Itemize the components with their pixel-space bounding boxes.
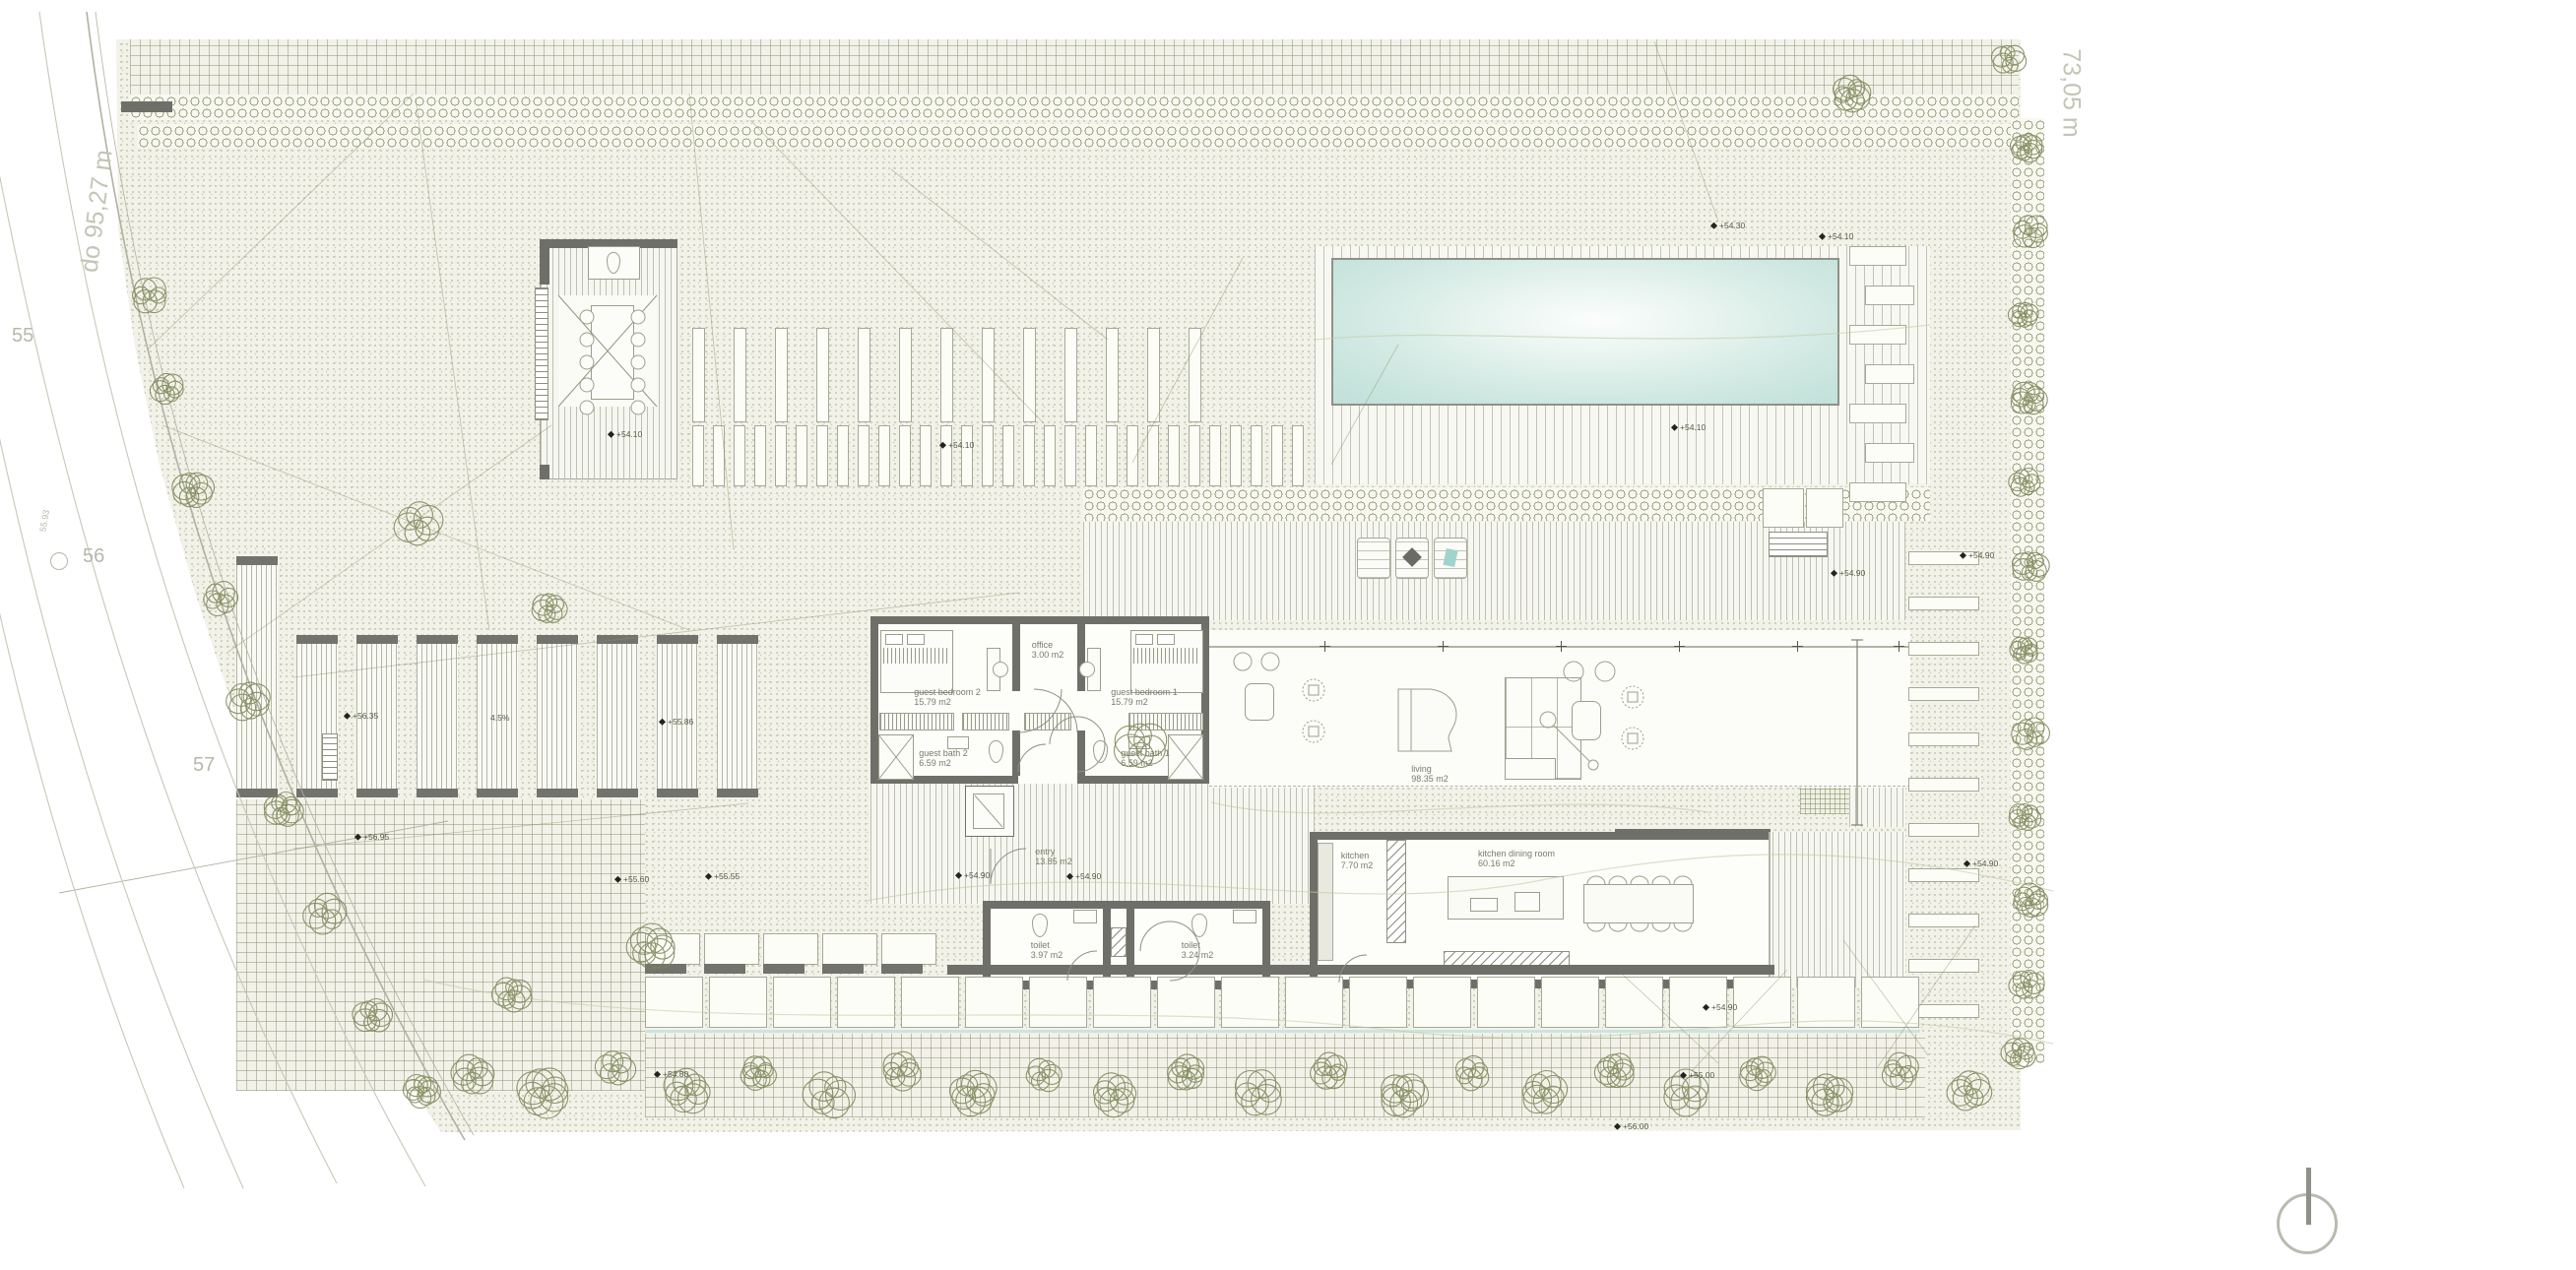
north-arrow-icon [2306,1168,2311,1225]
level-marker: +54.10 [1672,423,1706,432]
level-marker: +54.10 [1820,232,1853,241]
room-name: living [1411,764,1432,774]
level-dot-icon [608,431,614,438]
level-marker: +55.86 [660,718,693,727]
room-area: 3.24 m2 [1182,950,1214,960]
level-dot-icon [654,1071,661,1078]
parcel-number-56: 56 [83,545,104,568]
room-area: 15.79 m2 [914,697,981,707]
room-name: toilet [1031,940,1050,950]
room-area: 13.85 m2 [1035,857,1072,866]
level-marker: +54.10 [940,441,974,450]
level-marker: +54.80 [655,1070,688,1079]
boundary-dimension-right: 73,05 m [2057,48,2086,137]
room-label-kitchen: kitchen 7.70 m2 [1341,851,1374,870]
level-marker: +54.10 [609,430,642,439]
level-marker: +54.90 [1832,569,1865,578]
level-dot-icon [1671,424,1678,431]
room-label-guest-bedroom-2: guest bedroom 2 15.79 m2 [914,687,981,707]
room-area: 7.70 m2 [1341,860,1374,870]
level-dot-icon [1831,570,1837,577]
level-marker: +56.95 [355,833,389,842]
room-area: 15.79 m2 [1111,697,1178,707]
room-area: 98.35 m2 [1411,774,1449,784]
level-dot-icon [1960,552,1966,559]
room-label-living: living 98.35 m2 [1411,764,1449,784]
room-name: guest bath 1 [1121,748,1170,758]
room-label-office: office 3.00 m2 [1032,640,1064,660]
level-marker: +55.60 [615,875,649,884]
room-area: 3.97 m2 [1031,950,1063,960]
level-marker: +55.55 [706,872,740,881]
room-name: kitchen dining room [1478,849,1555,858]
room-area: 3.00 m2 [1032,650,1064,660]
benchmark-point [50,552,68,570]
level-marker: +54.90 [1961,551,1994,560]
level-marker: +56.00 [1615,1122,1648,1131]
level-dot-icon [1680,1072,1687,1079]
room-name: entry [1035,847,1055,857]
room-name: toilet [1182,940,1200,950]
room-label-guest-bath-2: guest bath 2 6.59 m2 [919,748,968,768]
level-dot-icon [1819,233,1826,240]
level-marker: +55.00 [1681,1071,1714,1080]
level-marker: +54.90 [1964,859,1998,868]
room-label-entry: entry 13.85 m2 [1035,847,1072,866]
room-label-toilet-2: toilet 3.24 m2 [1182,940,1214,960]
level-marker: +54.90 [1704,1003,1737,1012]
room-area: 6.59 m2 [919,758,968,768]
room-label-guest-bath-1: guest bath 1 6.59 m2 [1121,748,1170,768]
room-name: kitchen [1341,851,1370,860]
level-dot-icon [354,834,361,841]
level-dot-icon [1710,222,1717,229]
level-dot-icon [344,713,351,720]
parcel-number-55: 55 [12,325,33,348]
room-name: guest bedroom 1 [1111,687,1178,697]
parcel-number-57: 57 [193,754,215,777]
room-area: 6.59 m2 [1121,758,1170,768]
level-marker: +54.90 [1067,872,1101,881]
level-dot-icon [939,442,946,449]
slope-label: 4.5% [490,714,509,723]
level-marker: +54.90 [956,871,990,880]
level-dot-icon [955,872,962,879]
room-name: guest bedroom 2 [914,687,981,697]
level-marker: +54.30 [1711,222,1745,230]
level-dot-icon [1066,873,1073,880]
level-dot-icon [1964,860,1970,867]
level-marker: +56.35 [345,712,378,721]
level-dot-icon [1614,1123,1621,1130]
level-dot-icon [1703,1004,1709,1011]
level-dot-icon [614,876,621,883]
level-markers-layer: +54.30+54.10+54.10+54.10+54.10+56.35+55.… [0,0,2576,1270]
room-name: office [1032,640,1053,650]
site-plan: +54.30+54.10+54.10+54.10+54.10+56.35+55.… [0,0,2576,1270]
room-label-guest-bedroom-1: guest bedroom 1 15.79 m2 [1111,687,1178,707]
level-dot-icon [705,873,712,880]
room-label-toilet-1: toilet 3.97 m2 [1031,940,1063,960]
level-dot-icon [659,719,666,726]
room-label-kitchen-dining: kitchen dining room 60.16 m2 [1478,849,1555,868]
room-area: 60.16 m2 [1478,858,1555,868]
room-name: guest bath 2 [919,748,968,758]
